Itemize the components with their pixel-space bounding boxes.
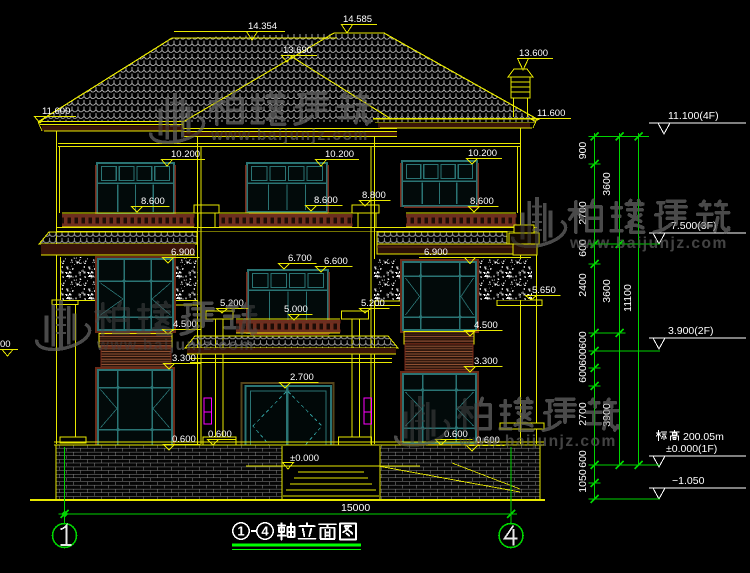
svg-text:600: 600 — [577, 348, 589, 366]
svg-text:10.200: 10.200 — [171, 149, 200, 160]
svg-text:2400: 2400 — [577, 273, 589, 297]
svg-text:−1.050: −1.050 — [672, 475, 705, 487]
svg-text:14.354: 14.354 — [248, 21, 277, 32]
svg-text:3.300: 3.300 — [474, 356, 498, 367]
svg-text:6.900: 6.900 — [171, 247, 195, 258]
svg-text:900: 900 — [577, 142, 589, 160]
svg-text:8.600: 8.600 — [141, 196, 165, 207]
svg-text:3.900(2F): 3.900(2F) — [668, 325, 714, 337]
svg-text:4: 4 — [261, 524, 269, 539]
svg-text:13.690: 13.690 — [283, 45, 312, 56]
svg-text:www.baijunjz.com: www.baijunjz.com — [96, 337, 255, 354]
svg-text:5.000: 5.000 — [284, 304, 308, 315]
svg-text:0.600: 0.600 — [208, 429, 232, 440]
svg-text:www.baijunjz.com: www.baijunjz.com — [569, 235, 728, 252]
svg-text:www.baijunjz.com: www.baijunjz.com — [210, 127, 369, 144]
svg-text:4.500: 4.500 — [474, 320, 498, 331]
svg-text:600: 600 — [577, 331, 589, 349]
svg-text:6.700: 6.700 — [288, 253, 312, 264]
svg-text:2.700: 2.700 — [290, 372, 314, 383]
svg-text:8.800: 8.800 — [362, 190, 386, 201]
svg-text:11.600: 11.600 — [537, 108, 565, 119]
svg-text:5.200: 5.200 — [361, 298, 385, 309]
svg-text:www.baijunjz.com: www.baijunjz.com — [458, 433, 617, 450]
svg-text:1: 1 — [237, 524, 244, 539]
svg-text:5.650: 5.650 — [532, 285, 556, 296]
svg-text:6.900: 6.900 — [424, 247, 448, 258]
svg-text:200.05m: 200.05m — [683, 431, 724, 443]
svg-text:15000: 15000 — [341, 502, 370, 514]
svg-text:1050: 1050 — [577, 469, 589, 493]
svg-text:3600: 3600 — [601, 172, 613, 196]
svg-text:6.600: 6.600 — [324, 256, 348, 267]
svg-text:±0.000: ±0.000 — [290, 453, 319, 464]
svg-text:11.100(4F): 11.100(4F) — [668, 110, 719, 122]
svg-text:3600: 3600 — [601, 279, 613, 303]
svg-text:10.200: 10.200 — [325, 149, 354, 160]
svg-text:3.300: 3.300 — [172, 353, 196, 364]
svg-text:11.600: 11.600 — [42, 106, 70, 117]
svg-text:11100: 11100 — [622, 284, 634, 312]
svg-text:8.600: 8.600 — [470, 196, 494, 207]
svg-text:±0.000(1F): ±0.000(1F) — [666, 443, 717, 455]
svg-text:8.600: 8.600 — [314, 195, 338, 206]
svg-text:10.200: 10.200 — [468, 148, 497, 159]
svg-text:600: 600 — [577, 450, 589, 468]
svg-text:14.585: 14.585 — [343, 14, 372, 25]
svg-text:0.600: 0.600 — [172, 434, 196, 445]
svg-text:600: 600 — [577, 365, 589, 383]
svg-text:00: 00 — [0, 339, 11, 350]
svg-text:13.600: 13.600 — [519, 48, 548, 59]
